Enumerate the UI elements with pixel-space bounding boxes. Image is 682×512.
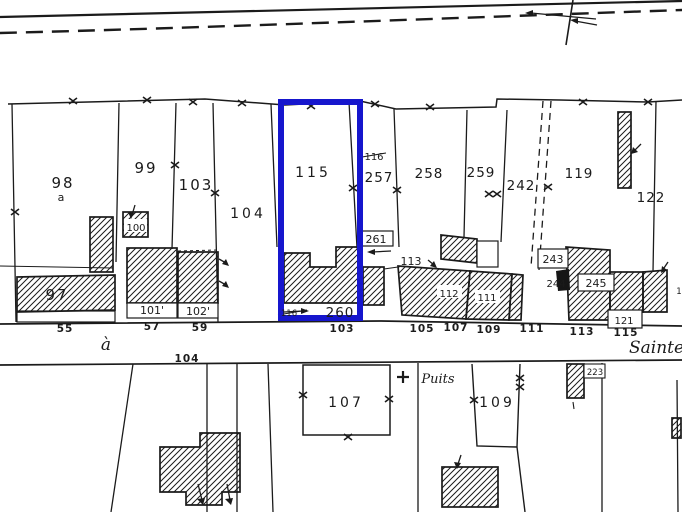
parcel-label-119: 119: [565, 166, 594, 182]
edge-fragment: 1: [676, 287, 681, 297]
boundary-mark-icon: [385, 396, 393, 402]
parcel-label-98a: a: [58, 191, 65, 204]
arrow-survey-2: [575, 21, 597, 25]
arrowhead: [222, 259, 229, 266]
building-below-109: [442, 467, 498, 507]
parcel-label-116-old: 116: [364, 152, 383, 163]
parcel-label-103: 103: [179, 176, 214, 194]
label-112: 112: [439, 289, 458, 300]
street-number-105: 105: [410, 323, 435, 335]
building-label-260: 260: [326, 305, 355, 321]
building-edge-sliver: [672, 418, 681, 438]
street-number-103: 103: [330, 323, 355, 335]
building-102: [178, 252, 218, 303]
boundary-mark-icon: [493, 191, 501, 197]
street-name: Sainte: [629, 338, 682, 358]
arrow-roof: [664, 262, 668, 268]
label-243: 243: [543, 253, 564, 266]
building-right-of-115: [363, 267, 384, 305]
label-121: 121: [614, 316, 633, 327]
building-223: [567, 364, 584, 398]
building-above-112: [441, 235, 477, 263]
building-121-right: [643, 270, 667, 312]
street-label-104: 104: [175, 353, 200, 365]
label-261: 261: [366, 233, 387, 246]
label-113: 113: [401, 255, 422, 268]
boundary-mark-icon: [516, 384, 524, 390]
cadastral-map: 98 a 99 103 104 115 116 257 258 259 242 …: [0, 0, 682, 512]
parcel-label-259: 259: [467, 165, 496, 181]
street-number-107: 107: [444, 322, 469, 334]
survey-line: [566, 0, 573, 45]
arrowhead: [570, 18, 578, 24]
street-number-113: 113: [570, 326, 595, 338]
building-sliver-111r: [509, 274, 523, 320]
map-canvas: 98 a 99 103 104 115 116 257 258 259 242 …: [0, 0, 682, 512]
street-number-57: 57: [144, 321, 161, 333]
boundary-mark-icon: [238, 100, 246, 106]
label-245: 245: [586, 277, 607, 290]
parcel-label-104: 104: [230, 206, 266, 222]
parcel-label-122: 122: [637, 190, 666, 206]
parcel-label-115: 115: [295, 165, 331, 181]
boundary-mark-icon: [485, 191, 493, 197]
building-97-column: [90, 217, 113, 272]
arrowhead: [367, 249, 375, 255]
parcel-label-257: 257: [365, 170, 394, 186]
street-number-55: 55: [57, 323, 74, 335]
building-102-dashes: [178, 250, 218, 251]
arrowhead: [301, 308, 309, 314]
arrowhead: [222, 281, 229, 288]
parcels-lower: [111, 363, 681, 512]
parcel-label-242: 242: [507, 178, 536, 194]
well-label: Puits: [420, 372, 455, 387]
building-121-left: [610, 272, 643, 312]
building-101: [127, 248, 177, 303]
street-word-a: à: [101, 335, 111, 355]
street-number-111: 111: [520, 323, 545, 335]
building-260: [284, 247, 361, 303]
parcel-label-98: 98: [51, 174, 74, 192]
parcel-label-107-lower: 107: [328, 395, 364, 411]
label-244: 244: [546, 279, 565, 290]
box-white-cluster: [477, 241, 498, 267]
boundary-mark-icon: [11, 209, 19, 215]
street-number-109: 109: [477, 324, 502, 336]
strip-97: [17, 311, 115, 322]
building-label-97: 97: [45, 286, 68, 304]
arrowhead: [225, 498, 233, 505]
street-number-59: 59: [192, 322, 209, 334]
parcel-label-258: 258: [415, 166, 444, 182]
parcel-label-99: 99: [134, 159, 157, 177]
building-label-101: 101': [140, 304, 164, 317]
lower-parcel-labels: 107 109 Puits: [328, 372, 515, 411]
label-111: 111: [477, 293, 496, 304]
parcel-label-109-lower: 109: [479, 395, 515, 411]
well-cross-icon: [397, 371, 409, 383]
building-122-bar: [618, 112, 631, 188]
label-223: 223: [587, 368, 603, 378]
building-label-100: 100: [126, 223, 145, 234]
building-label-102: 102': [186, 305, 210, 318]
boundary-mark-icon: [426, 104, 434, 110]
building-label-116-old: 116: [281, 309, 297, 319]
